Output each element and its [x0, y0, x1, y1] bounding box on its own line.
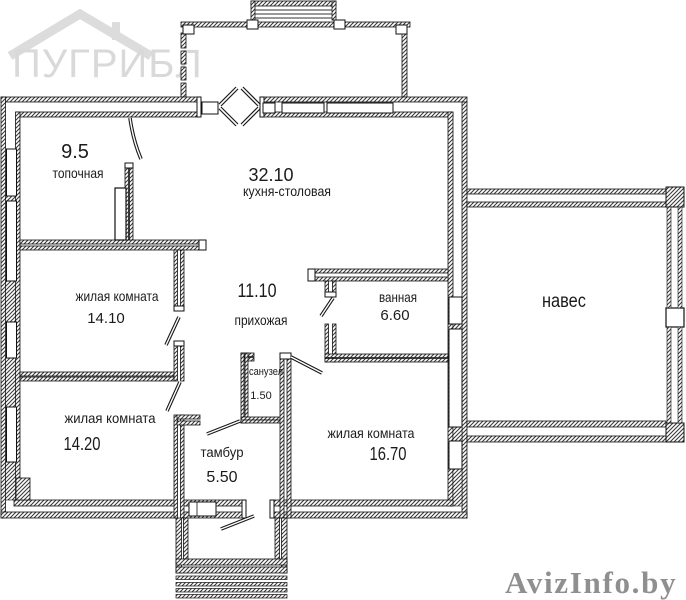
svg-text:AvizInfo.by: AvizInfo.by [505, 565, 677, 600]
svg-text:жилая комната: жилая комната [65, 410, 156, 426]
svg-text:32.10: 32.10 [248, 165, 293, 185]
svg-text:навес: навес [542, 291, 586, 312]
svg-text:9.5: 9.5 [61, 141, 89, 163]
svg-text:1.50: 1.50 [250, 390, 271, 402]
svg-text:ПУГРИБЛ: ПУГРИБЛ [12, 42, 203, 86]
svg-text:топочная: топочная [53, 165, 104, 181]
svg-text:14.10: 14.10 [87, 310, 125, 327]
svg-text:11.10: 11.10 [238, 281, 277, 302]
svg-text:жилая комната: жилая комната [328, 425, 415, 441]
svg-text:6.60: 6.60 [380, 307, 409, 324]
svg-text:санузел: санузел [249, 366, 283, 378]
svg-text:кухня-столовая: кухня-столовая [243, 183, 331, 199]
svg-text:14.20: 14.20 [64, 434, 101, 454]
svg-text:16.70: 16.70 [370, 444, 407, 464]
svg-text:тамбур: тамбур [201, 444, 244, 460]
svg-text:ванная: ванная [379, 289, 417, 305]
svg-text:жилая комната: жилая комната [76, 288, 159, 304]
svg-text:прихожая: прихожая [235, 312, 288, 328]
svg-text:5.50: 5.50 [206, 469, 237, 486]
